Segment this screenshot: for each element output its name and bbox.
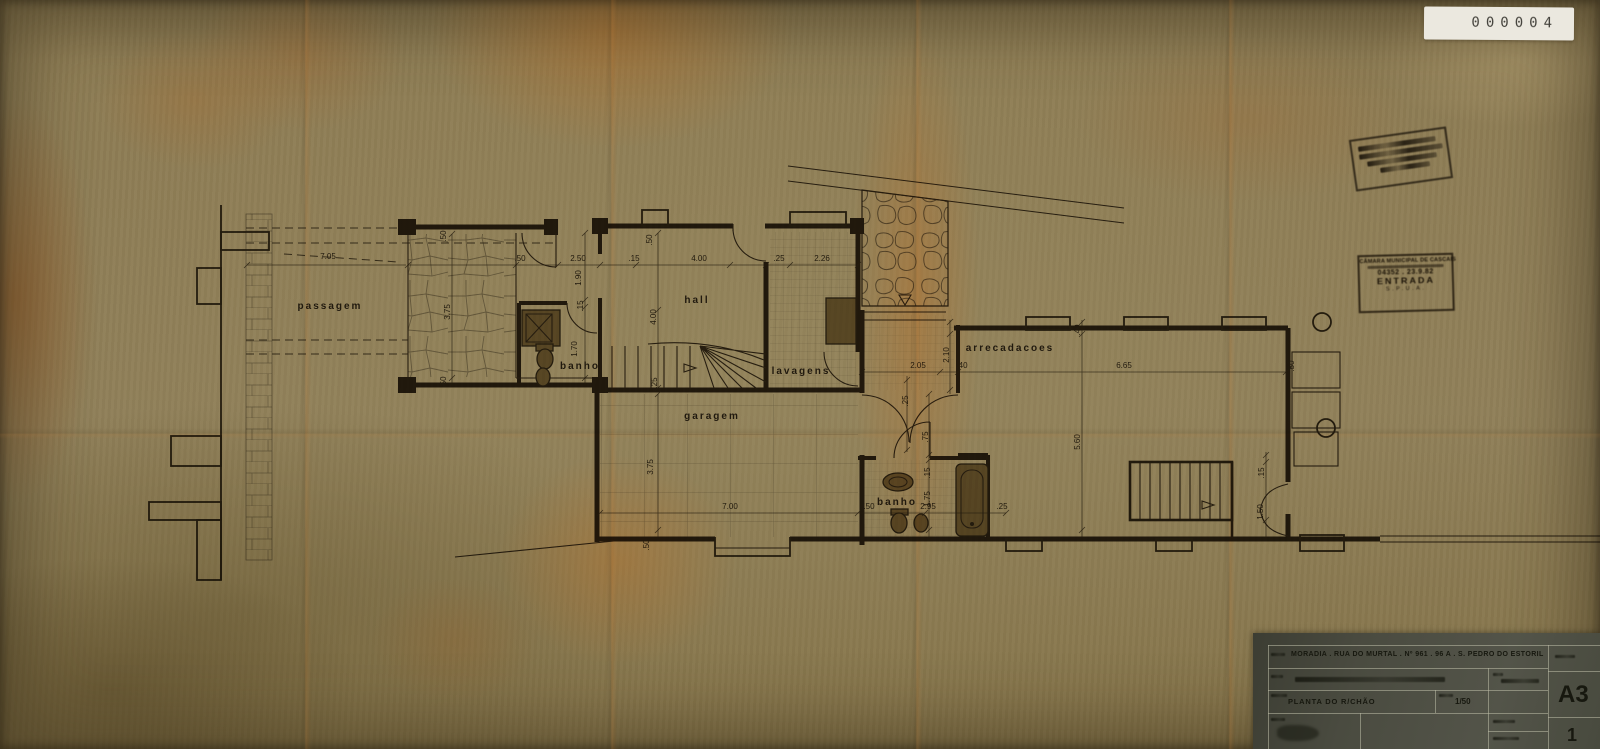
boundary-wall-step xyxy=(197,268,221,304)
room-label: passagem xyxy=(298,301,363,312)
dimension-label: 1.70 xyxy=(570,341,579,357)
dimension-label: .50 xyxy=(439,376,448,388)
dimension-label: .50 xyxy=(514,254,526,263)
toilet xyxy=(891,513,907,533)
pillar xyxy=(850,218,864,234)
dimension-label: 7.00 xyxy=(722,502,738,511)
room-label: garagem xyxy=(684,411,740,422)
toilet xyxy=(537,349,553,369)
dimension-label: .25 xyxy=(650,377,659,389)
scanned-floor-plan-paper: passagembanhohalllavagensgaragemarrecada… xyxy=(0,0,1600,749)
sheet-number: 1 xyxy=(1567,725,1577,746)
stair-treads xyxy=(1140,463,1220,519)
dimension-label: .50 xyxy=(863,502,875,511)
stair-enclosure xyxy=(1130,462,1232,520)
washbasin xyxy=(883,473,913,491)
pillar xyxy=(592,218,608,234)
drawing-title: PLANTA DO R/CHÃO xyxy=(1288,697,1375,706)
room-label: arrecadacoes xyxy=(966,343,1055,354)
dimension-label: .50 xyxy=(439,230,448,242)
room-label: banho xyxy=(877,497,917,508)
pillar xyxy=(592,377,608,393)
dimension-label: 2.05 xyxy=(910,361,926,370)
dimension-label: .50 xyxy=(1287,360,1296,372)
boundary-wall-step xyxy=(197,520,221,580)
column-or-tree xyxy=(1313,313,1331,331)
stair-direction-arrow xyxy=(1202,501,1214,509)
dimension-label: .25 xyxy=(773,254,785,263)
dimension-label: 3.75 xyxy=(646,459,655,475)
dimension-label: .40 xyxy=(956,361,968,370)
boundary-wall-step xyxy=(149,502,221,520)
ramp-lines xyxy=(788,166,1124,223)
dimension-label: 4.00 xyxy=(691,254,707,263)
archive-number: 000004 xyxy=(1471,15,1558,32)
dimension-label: 1.50 xyxy=(1256,504,1265,520)
site-boundary-line xyxy=(1380,536,1600,542)
room-label: lavagens xyxy=(772,366,831,377)
boundary-wall-step xyxy=(171,436,221,466)
bathtub-drain xyxy=(970,522,974,526)
site-line xyxy=(455,541,614,557)
dimension-label: .15 xyxy=(1257,467,1266,479)
dimension-label: 5.60 xyxy=(1073,434,1082,450)
paving-slab xyxy=(1292,352,1340,388)
dimension-label: .50 xyxy=(642,539,651,551)
dimension-label: .15 xyxy=(923,467,932,479)
dimension-label: .25 xyxy=(996,502,1008,511)
door-swing xyxy=(522,233,556,267)
dimension-label: .50 xyxy=(645,234,654,246)
dimension-label: 3.75 xyxy=(443,304,452,320)
room-label: hall xyxy=(684,295,709,306)
entry-stamp: CÂMARA MUNICIPAL DE CASCAIS 04352 . 23.9… xyxy=(1357,253,1454,313)
dimension-label: 2.26 xyxy=(814,254,830,263)
room-label: banho xyxy=(560,361,600,372)
dimension-label: 2.10 xyxy=(942,347,951,363)
pillar xyxy=(398,219,416,235)
dimension-label: .40 xyxy=(1073,324,1082,336)
pillar xyxy=(398,377,416,393)
archive-number-sticker: 000004 xyxy=(1424,6,1574,40)
bidet xyxy=(536,368,550,386)
dimension-label: 6.65 xyxy=(1116,361,1132,370)
stair-winders xyxy=(648,343,766,388)
dimension-label: 7.05 xyxy=(320,252,336,261)
sheet-format: A3 xyxy=(1558,681,1589,709)
terrace-paving xyxy=(408,234,516,377)
stone-masonry-patch xyxy=(862,190,948,306)
dimension-label: .25 xyxy=(901,395,910,407)
dimension-label: .15 xyxy=(576,300,585,312)
bidet xyxy=(914,514,928,532)
double-door-swing xyxy=(862,395,958,443)
dimension-label: .75 xyxy=(921,431,930,443)
garage-door-recess xyxy=(715,537,790,556)
scale-value: 1/50 xyxy=(1455,697,1471,706)
title-block: MORADIA . RUA DO MURTAL . Nº 961 . 96 A … xyxy=(1253,633,1600,749)
dimension-label: 4.00 xyxy=(649,309,658,325)
project-title: MORADIA . RUA DO MURTAL . Nº 961 . 96 A … xyxy=(1291,651,1544,658)
dimension-label: 1.90 xyxy=(574,270,583,286)
door-swing xyxy=(733,224,766,261)
path-paving-strip xyxy=(246,214,272,560)
dimension-label: .15 xyxy=(628,254,640,263)
vestibule-tiles xyxy=(864,315,954,390)
paving-slab xyxy=(1294,432,1338,466)
pillar xyxy=(544,219,558,235)
laundry-appliance xyxy=(826,298,856,344)
dimension-label: 2.50 xyxy=(570,254,586,263)
dimension-label: 1.75 xyxy=(923,491,932,507)
